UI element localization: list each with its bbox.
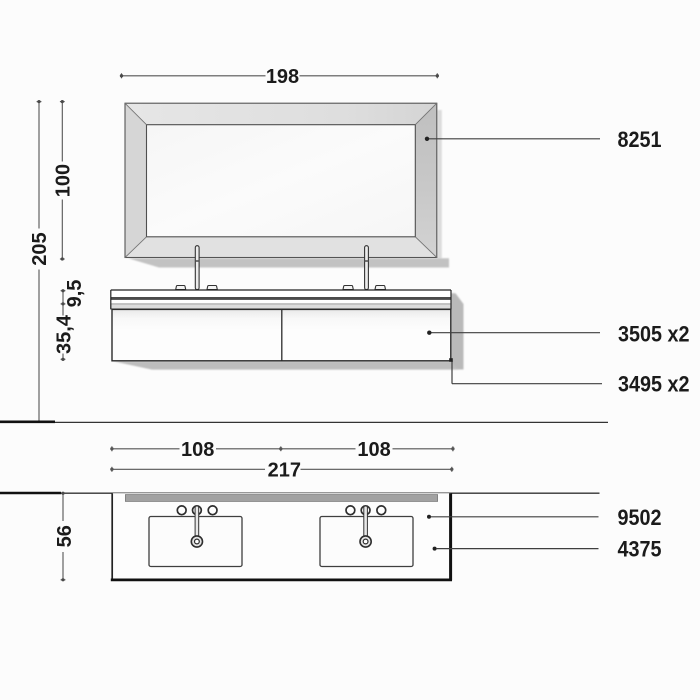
svg-text:108: 108	[357, 439, 390, 461]
svg-text:205: 205	[29, 232, 51, 265]
svg-text:8251: 8251	[618, 128, 662, 152]
svg-text:35,4: 35,4	[53, 314, 75, 354]
svg-text:217: 217	[268, 459, 301, 481]
svg-text:4375: 4375	[618, 538, 662, 562]
svg-text:3505 x2: 3505 x2	[618, 322, 690, 346]
svg-text:198: 198	[266, 66, 299, 88]
svg-text:100: 100	[52, 164, 74, 197]
svg-text:3495 x2: 3495 x2	[618, 373, 690, 397]
svg-text:9502: 9502	[618, 506, 662, 530]
svg-text:9,5: 9,5	[64, 280, 86, 308]
svg-text:56: 56	[54, 525, 76, 547]
svg-text:108: 108	[181, 439, 214, 461]
